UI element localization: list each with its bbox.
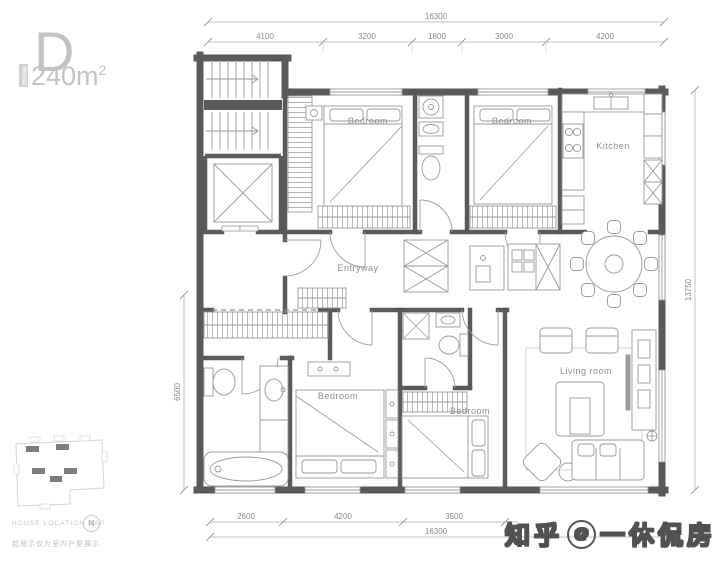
bedroom-bottom-left-furniture <box>296 362 398 478</box>
plan-area: 建筑面积 240m2 <box>19 64 106 88</box>
kitchen-furniture <box>562 93 662 224</box>
disclaimer-text: 起居示仅为室内户型展示 <box>12 539 100 549</box>
dim-top-seg-2: 1800 <box>428 32 446 41</box>
dim-top-seg-0: 4100 <box>256 32 274 41</box>
bathroom-bottom-fixtures <box>204 366 288 486</box>
dim-bottom-seg-0: 2600 <box>237 512 255 521</box>
dim-top-overall: 16300 <box>425 12 448 21</box>
label-living-room: Living room <box>560 366 612 376</box>
dim-bottom-seg-1: 4200 <box>334 512 352 521</box>
bathroom-top-fixtures <box>419 96 443 180</box>
hallway-cabinets <box>298 240 560 308</box>
dim-bottom-overall: 16300 <box>425 527 448 536</box>
north-compass-icon: N <box>83 515 100 532</box>
walkin-closet <box>204 312 328 338</box>
label-bedroom-bottom-left: Bedroom <box>318 391 358 401</box>
watermark-brand: 知乎 <box>505 516 563 552</box>
label-bedroom-top-left: Bedroom <box>348 116 388 126</box>
bedroom-bottom-middle-furniture <box>402 313 488 478</box>
label-bedroom-bottom-middle: Bedroom <box>450 406 490 416</box>
watermark-handle: 一休侃房 <box>600 516 716 552</box>
area-exponent: 2 <box>99 62 107 78</box>
dim-right: 13750 <box>684 278 693 301</box>
dining-table <box>571 221 658 308</box>
zhihu-watermark: 知乎 @ 一休侃房 <box>505 516 716 552</box>
watermark-at-icon: @ <box>567 520 596 549</box>
area-badge: 建筑面积 <box>19 64 28 87</box>
dim-top-seg-1: 3200 <box>358 32 376 41</box>
label-entryway: Entryway <box>337 263 378 273</box>
dim-top-seg-4: 4200 <box>596 32 614 41</box>
label-bedroom-top-right: Bedroom <box>492 116 532 126</box>
living-room-furniture <box>521 328 657 483</box>
house-location-map <box>10 434 122 516</box>
dim-left: 6500 <box>173 383 182 401</box>
area-value: 240m2 <box>31 64 106 88</box>
dim-top-seg-3: 3000 <box>495 32 513 41</box>
elevator <box>205 156 281 231</box>
staircase <box>204 60 282 150</box>
dim-bottom-seg-2: 3500 <box>445 512 463 521</box>
label-kitchen: Kitchen <box>596 141 630 151</box>
